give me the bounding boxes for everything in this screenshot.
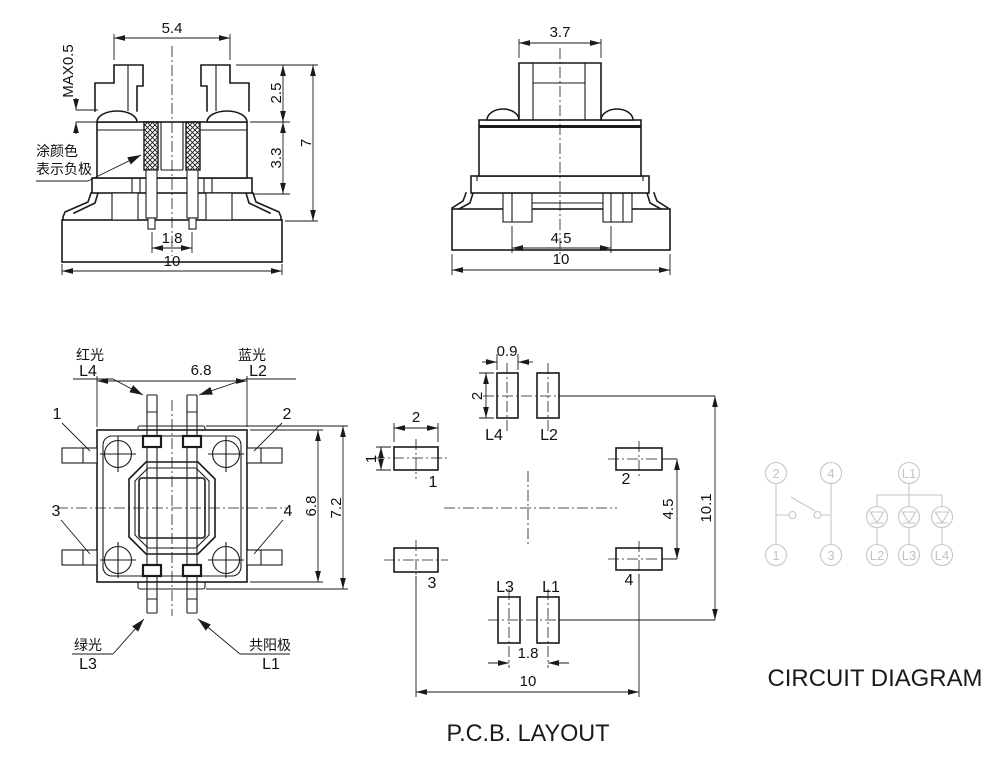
dim-cap-width: 5.4 [162, 20, 183, 37]
pcb-led-pad-l4 [497, 373, 518, 418]
front-right-pin-tip [189, 218, 196, 229]
label-blue: 蓝光 [238, 347, 266, 363]
top-pin3: 3 [52, 503, 61, 520]
front-right-block [206, 193, 232, 220]
dim-top-height: 6.8 [303, 496, 320, 517]
dim-base-width-side: 10 [553, 251, 570, 268]
circuit-t2: 2 [772, 466, 779, 481]
pcb-pad1-label: 1 [429, 474, 438, 491]
circuit-t4: 4 [827, 466, 834, 481]
dim-led-pad-height: 2 [469, 392, 486, 400]
circuit-l3: L3 [902, 548, 916, 563]
circuit-diagram-title: CIRCUIT DIAGRAM [768, 665, 983, 692]
pcb-layout-title: P.C.B. LAYOUT [447, 720, 610, 747]
front-left-block [112, 193, 138, 220]
label-blue-pin: L2 [249, 363, 267, 380]
dim-top-overall: 7.2 [328, 498, 345, 519]
dim-pad-span: 4.5 [660, 499, 677, 520]
label-green-pin: L3 [79, 656, 97, 673]
dim-standoff: MAX0.5 [60, 44, 77, 97]
pcb-pad4-label: 4 [625, 572, 634, 589]
circuit-t1: 1 [772, 548, 779, 563]
label-red: 红光 [76, 347, 104, 363]
pcb-pad2-label: 2 [622, 471, 631, 488]
dim-led-span: 10.1 [698, 493, 715, 522]
note-line1: 涂颜色 [36, 143, 78, 159]
pcb-led2-label: L2 [540, 427, 558, 444]
pcb-led1-label: L1 [542, 579, 560, 596]
circuit-l4: L4 [935, 548, 949, 563]
label-anode: 共阳极 [249, 637, 291, 653]
dim-body-height: 3.3 [268, 148, 285, 169]
pcb-led3-label: L3 [496, 579, 514, 596]
dim-led-pitch: 1.8 [518, 645, 539, 662]
front-right-hatch [186, 122, 200, 170]
front-left-pin [146, 170, 157, 218]
dim-base-width: 10 [164, 253, 181, 270]
note-line2: 表示负极 [36, 161, 92, 177]
dim-led-pad-width: 0.9 [497, 343, 518, 360]
label-anode-pin: L1 [262, 656, 280, 673]
side-left-block [503, 193, 532, 222]
dim-pad-pitch: 10 [520, 673, 537, 690]
technical-drawing-sheet: 5.4 MAX0.5 2.5 3.3 7 1.8 10 涂颜色 表示负极 [0, 0, 1000, 769]
label-red-pin: L4 [79, 363, 97, 380]
top-pin1: 1 [53, 406, 62, 423]
dim-pin-span: 4.5 [551, 230, 572, 247]
dim-pad-width: 2 [412, 409, 420, 426]
dim-pad-height: 1 [363, 455, 380, 463]
top-pin2: 2 [283, 406, 292, 423]
pcb-led4-label: L4 [485, 427, 503, 444]
dim-top-width: 6.8 [191, 362, 212, 379]
drawing-canvas: 5.4 MAX0.5 2.5 3.3 7 1.8 10 涂颜色 表示负极 [0, 0, 1000, 769]
top-pin4: 4 [284, 503, 293, 520]
front-left-pin-tip [148, 218, 155, 229]
side-right-block [603, 193, 632, 222]
dim-pin-pitch: 1.8 [162, 230, 183, 247]
pcb-pad3-label: 3 [428, 575, 437, 592]
circuit-t3: 3 [827, 548, 834, 563]
front-left-hatch [144, 122, 158, 170]
label-green: 绿光 [74, 637, 102, 653]
circuit-l1: L1 [902, 466, 916, 481]
dim-stem-width: 3.7 [550, 24, 571, 41]
dim-upper-height: 2.5 [268, 83, 285, 104]
circuit-l2: L2 [870, 548, 884, 563]
front-right-pin [187, 170, 198, 218]
dim-total-height: 7 [298, 139, 315, 147]
